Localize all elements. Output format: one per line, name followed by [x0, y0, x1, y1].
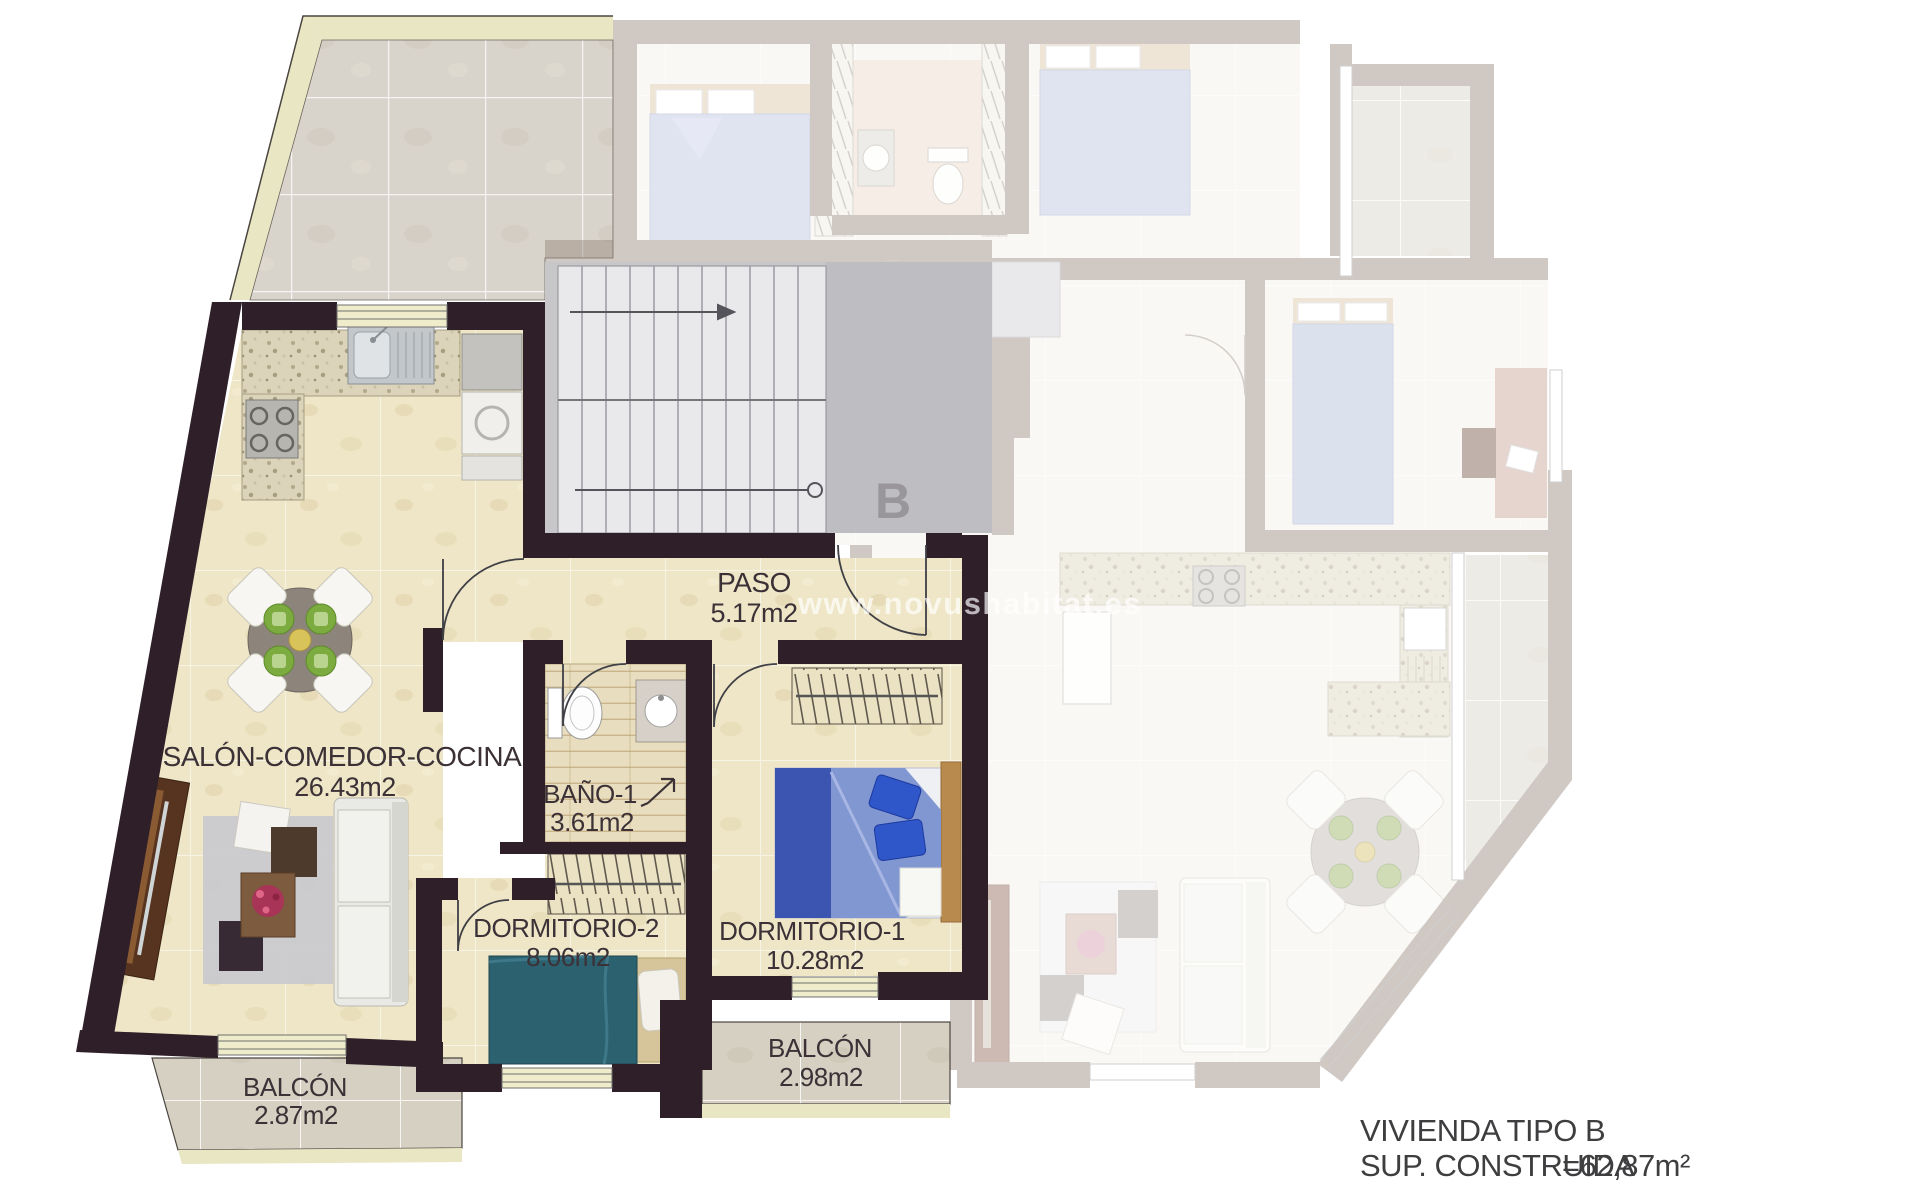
faded-bed-2: [1040, 40, 1190, 215]
stair-block-label: B: [875, 473, 911, 529]
closet-dormitorio1: [792, 668, 942, 724]
balcon1-parapet: [178, 1148, 462, 1164]
salon-area: 26.43m2: [294, 772, 396, 802]
stove: [246, 400, 298, 458]
floor-plan-page: B: [0, 0, 1920, 1200]
bano1-area: 3.61m2: [550, 807, 634, 837]
floor-plan-svg: B: [0, 0, 1920, 1200]
washing-machine: [462, 392, 522, 454]
toilet: [548, 687, 602, 739]
title-block: VIVIENDA TIPO B SUP. CONSTRUIDA =62,87m²: [1360, 1113, 1690, 1183]
title-line1: VIVIENDA TIPO B: [1360, 1113, 1605, 1148]
faded-toilet-tank: [928, 148, 968, 162]
faded-bed-3: [1293, 298, 1393, 524]
balcon2-label: BALCÓN: [768, 1033, 872, 1063]
watermark-text: www.novushabitat.es: [797, 586, 1142, 621]
pouf-brown: [271, 827, 317, 877]
closet-dormitorio2: [548, 854, 685, 914]
dormitorio2-area: 8.06m2: [526, 942, 610, 972]
kitchen-sink: [348, 326, 434, 384]
faded-bed-1: [650, 84, 810, 250]
faded-wardrobe: [982, 38, 1007, 236]
stairs: [558, 266, 826, 533]
bano1-label: BAÑO-1: [543, 779, 637, 809]
kitchen-cabinet: [462, 456, 522, 480]
faded-desk-chair: [1462, 428, 1496, 478]
faded-pouf-1: [1118, 890, 1158, 938]
balcon2-area: 2.98m2: [779, 1062, 863, 1092]
balcon1-area: 2.87m2: [254, 1100, 338, 1130]
paso-label: PASO: [717, 567, 791, 598]
faded-service-shaft: [992, 262, 1060, 337]
balcon1-label: BALCÓN: [243, 1072, 347, 1102]
stairwell: B: [545, 262, 992, 533]
sheet: [900, 868, 941, 916]
faded-bath-basin: [863, 145, 889, 171]
terrace-parapet-top: [303, 16, 613, 40]
bed-dormitorio2: [489, 956, 686, 1064]
fridge: [462, 334, 522, 390]
bed-dormitorio1: [775, 762, 961, 922]
faded-toilet-bowl: [933, 164, 963, 204]
centerpiece-bowl: [289, 629, 311, 651]
paso-area: 5.17m2: [710, 598, 797, 628]
dormitorio2-label: DORMITORIO-2: [473, 913, 659, 943]
coffee-table: [241, 873, 295, 937]
balcon2-parapet: [702, 1104, 950, 1118]
faded-sofa: [1180, 878, 1270, 1052]
faded-desk-top: [1495, 368, 1547, 518]
kitchen-window: [337, 305, 447, 327]
faded-flowers: [1077, 930, 1105, 958]
faded-fridge: [1063, 612, 1111, 704]
dormitorio2-window: [502, 1068, 612, 1088]
faded-balcony-topright: [1352, 86, 1470, 256]
salon-balcony-door: [218, 1035, 346, 1055]
bathroom-sink: [636, 680, 686, 742]
title-line2-value: =62,87m²: [1562, 1148, 1690, 1183]
dormitorio1-label: DORMITORIO-1: [719, 916, 905, 946]
faded-kitchen-counter-bottom: [1328, 682, 1450, 736]
faded-kitchen-sink: [1404, 608, 1446, 650]
sofa: [334, 798, 408, 1006]
dormitorio1-window: [792, 977, 878, 997]
salon-label: SALÓN-COMEDOR-COCINA: [163, 741, 523, 772]
dormitorio1-area: 10.28m2: [766, 945, 864, 975]
pillow: [874, 819, 927, 861]
